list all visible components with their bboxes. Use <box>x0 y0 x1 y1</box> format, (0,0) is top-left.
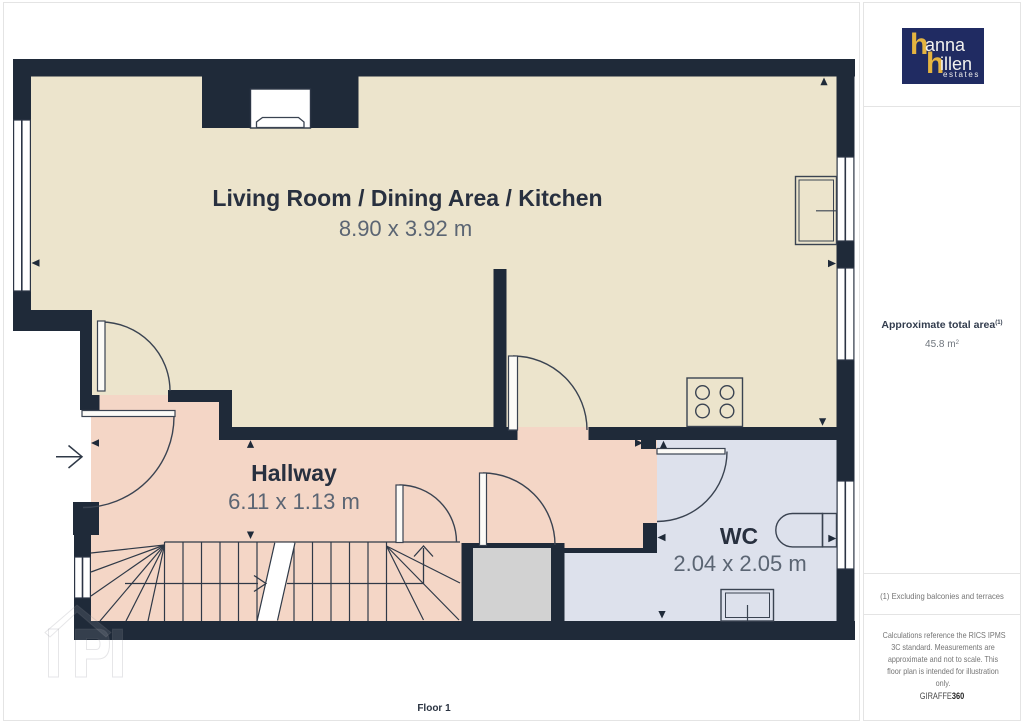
svg-text:WC: WC <box>720 523 758 549</box>
svg-text:8.90 x 3.92 m: 8.90 x 3.92 m <box>339 216 472 241</box>
svg-text:Floor 1: Floor 1 <box>417 703 451 714</box>
svg-text:Living Room / Dining Area / Ki: Living Room / Dining Area / Kitchen <box>212 185 602 211</box>
svg-text:Hallway: Hallway <box>251 460 337 486</box>
svg-text:2.04 x 2.05 m: 2.04 x 2.05 m <box>673 551 806 576</box>
svg-text:6.11 x 1.13 m: 6.11 x 1.13 m <box>228 489 360 514</box>
